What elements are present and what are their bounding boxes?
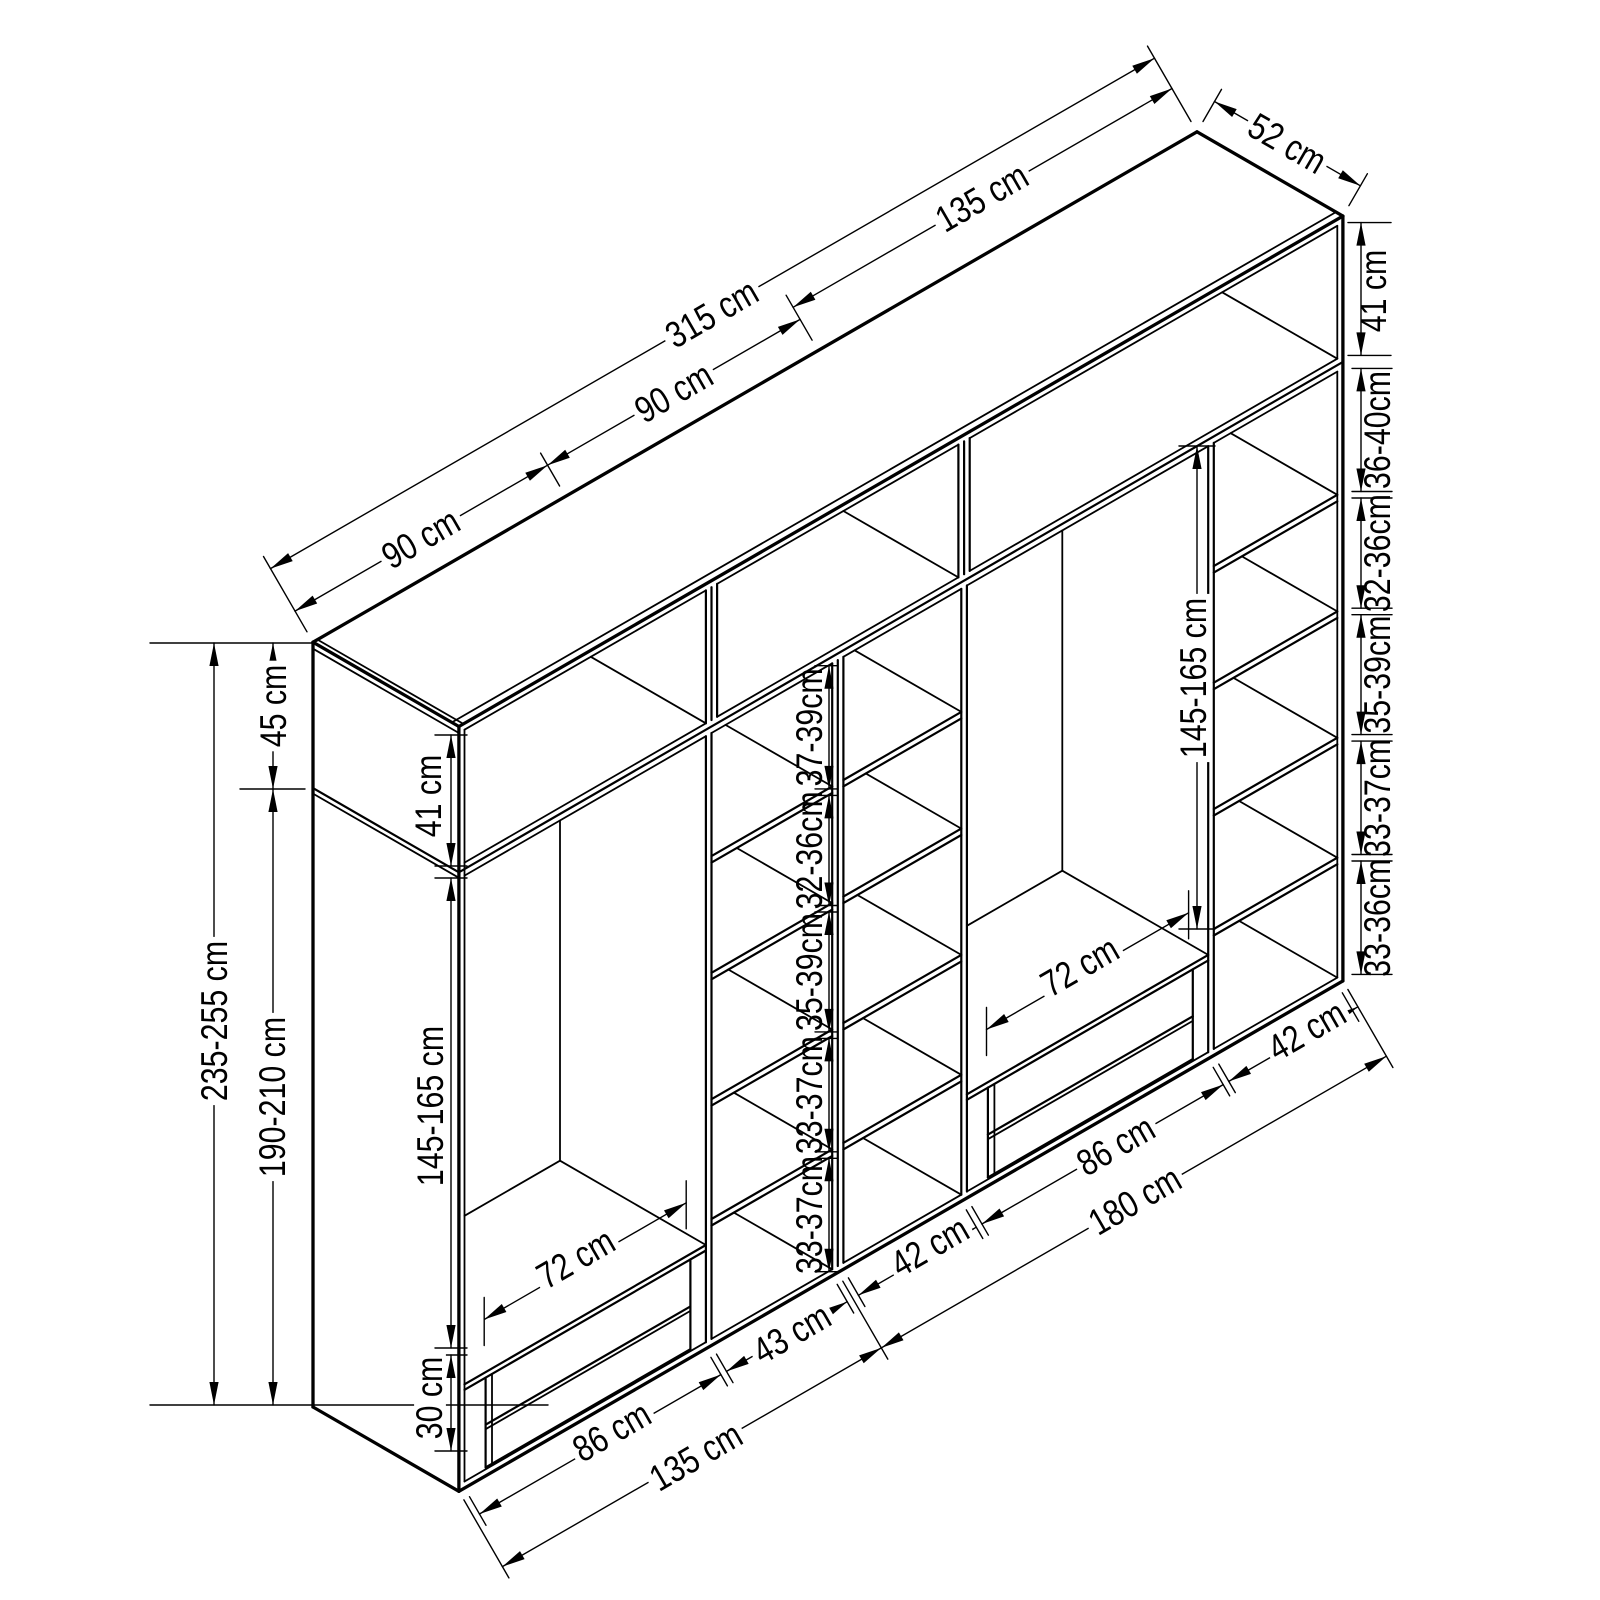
svg-text:35-39cm: 35-39cm bbox=[789, 913, 831, 1031]
svg-text:33-36cm: 33-36cm bbox=[1357, 859, 1399, 977]
svg-text:33-37cm: 33-37cm bbox=[789, 1156, 831, 1274]
svg-text:190-210 cm: 190-210 cm bbox=[252, 1017, 294, 1177]
svg-text:45 cm: 45 cm bbox=[253, 665, 295, 748]
svg-text:33-37cm: 33-37cm bbox=[789, 1036, 831, 1154]
svg-text:32-36cm: 32-36cm bbox=[789, 791, 831, 909]
svg-text:32-36cm: 32-36cm bbox=[1357, 494, 1399, 612]
svg-text:41 cm: 41 cm bbox=[1353, 250, 1395, 333]
svg-text:33-37cm: 33-37cm bbox=[1357, 739, 1399, 857]
svg-text:30 cm: 30 cm bbox=[409, 1357, 451, 1440]
svg-text:35-39cm: 35-39cm bbox=[1357, 616, 1399, 734]
svg-text:235-255 cm: 235-255 cm bbox=[194, 941, 236, 1101]
svg-text:145-165 cm: 145-165 cm bbox=[410, 1026, 452, 1186]
svg-text:37-39cm: 37-39cm bbox=[789, 668, 831, 786]
svg-text:36-40cm: 36-40cm bbox=[1357, 371, 1399, 489]
svg-text:145-165 cm: 145-165 cm bbox=[1173, 598, 1215, 758]
svg-text:41 cm: 41 cm bbox=[408, 755, 450, 838]
